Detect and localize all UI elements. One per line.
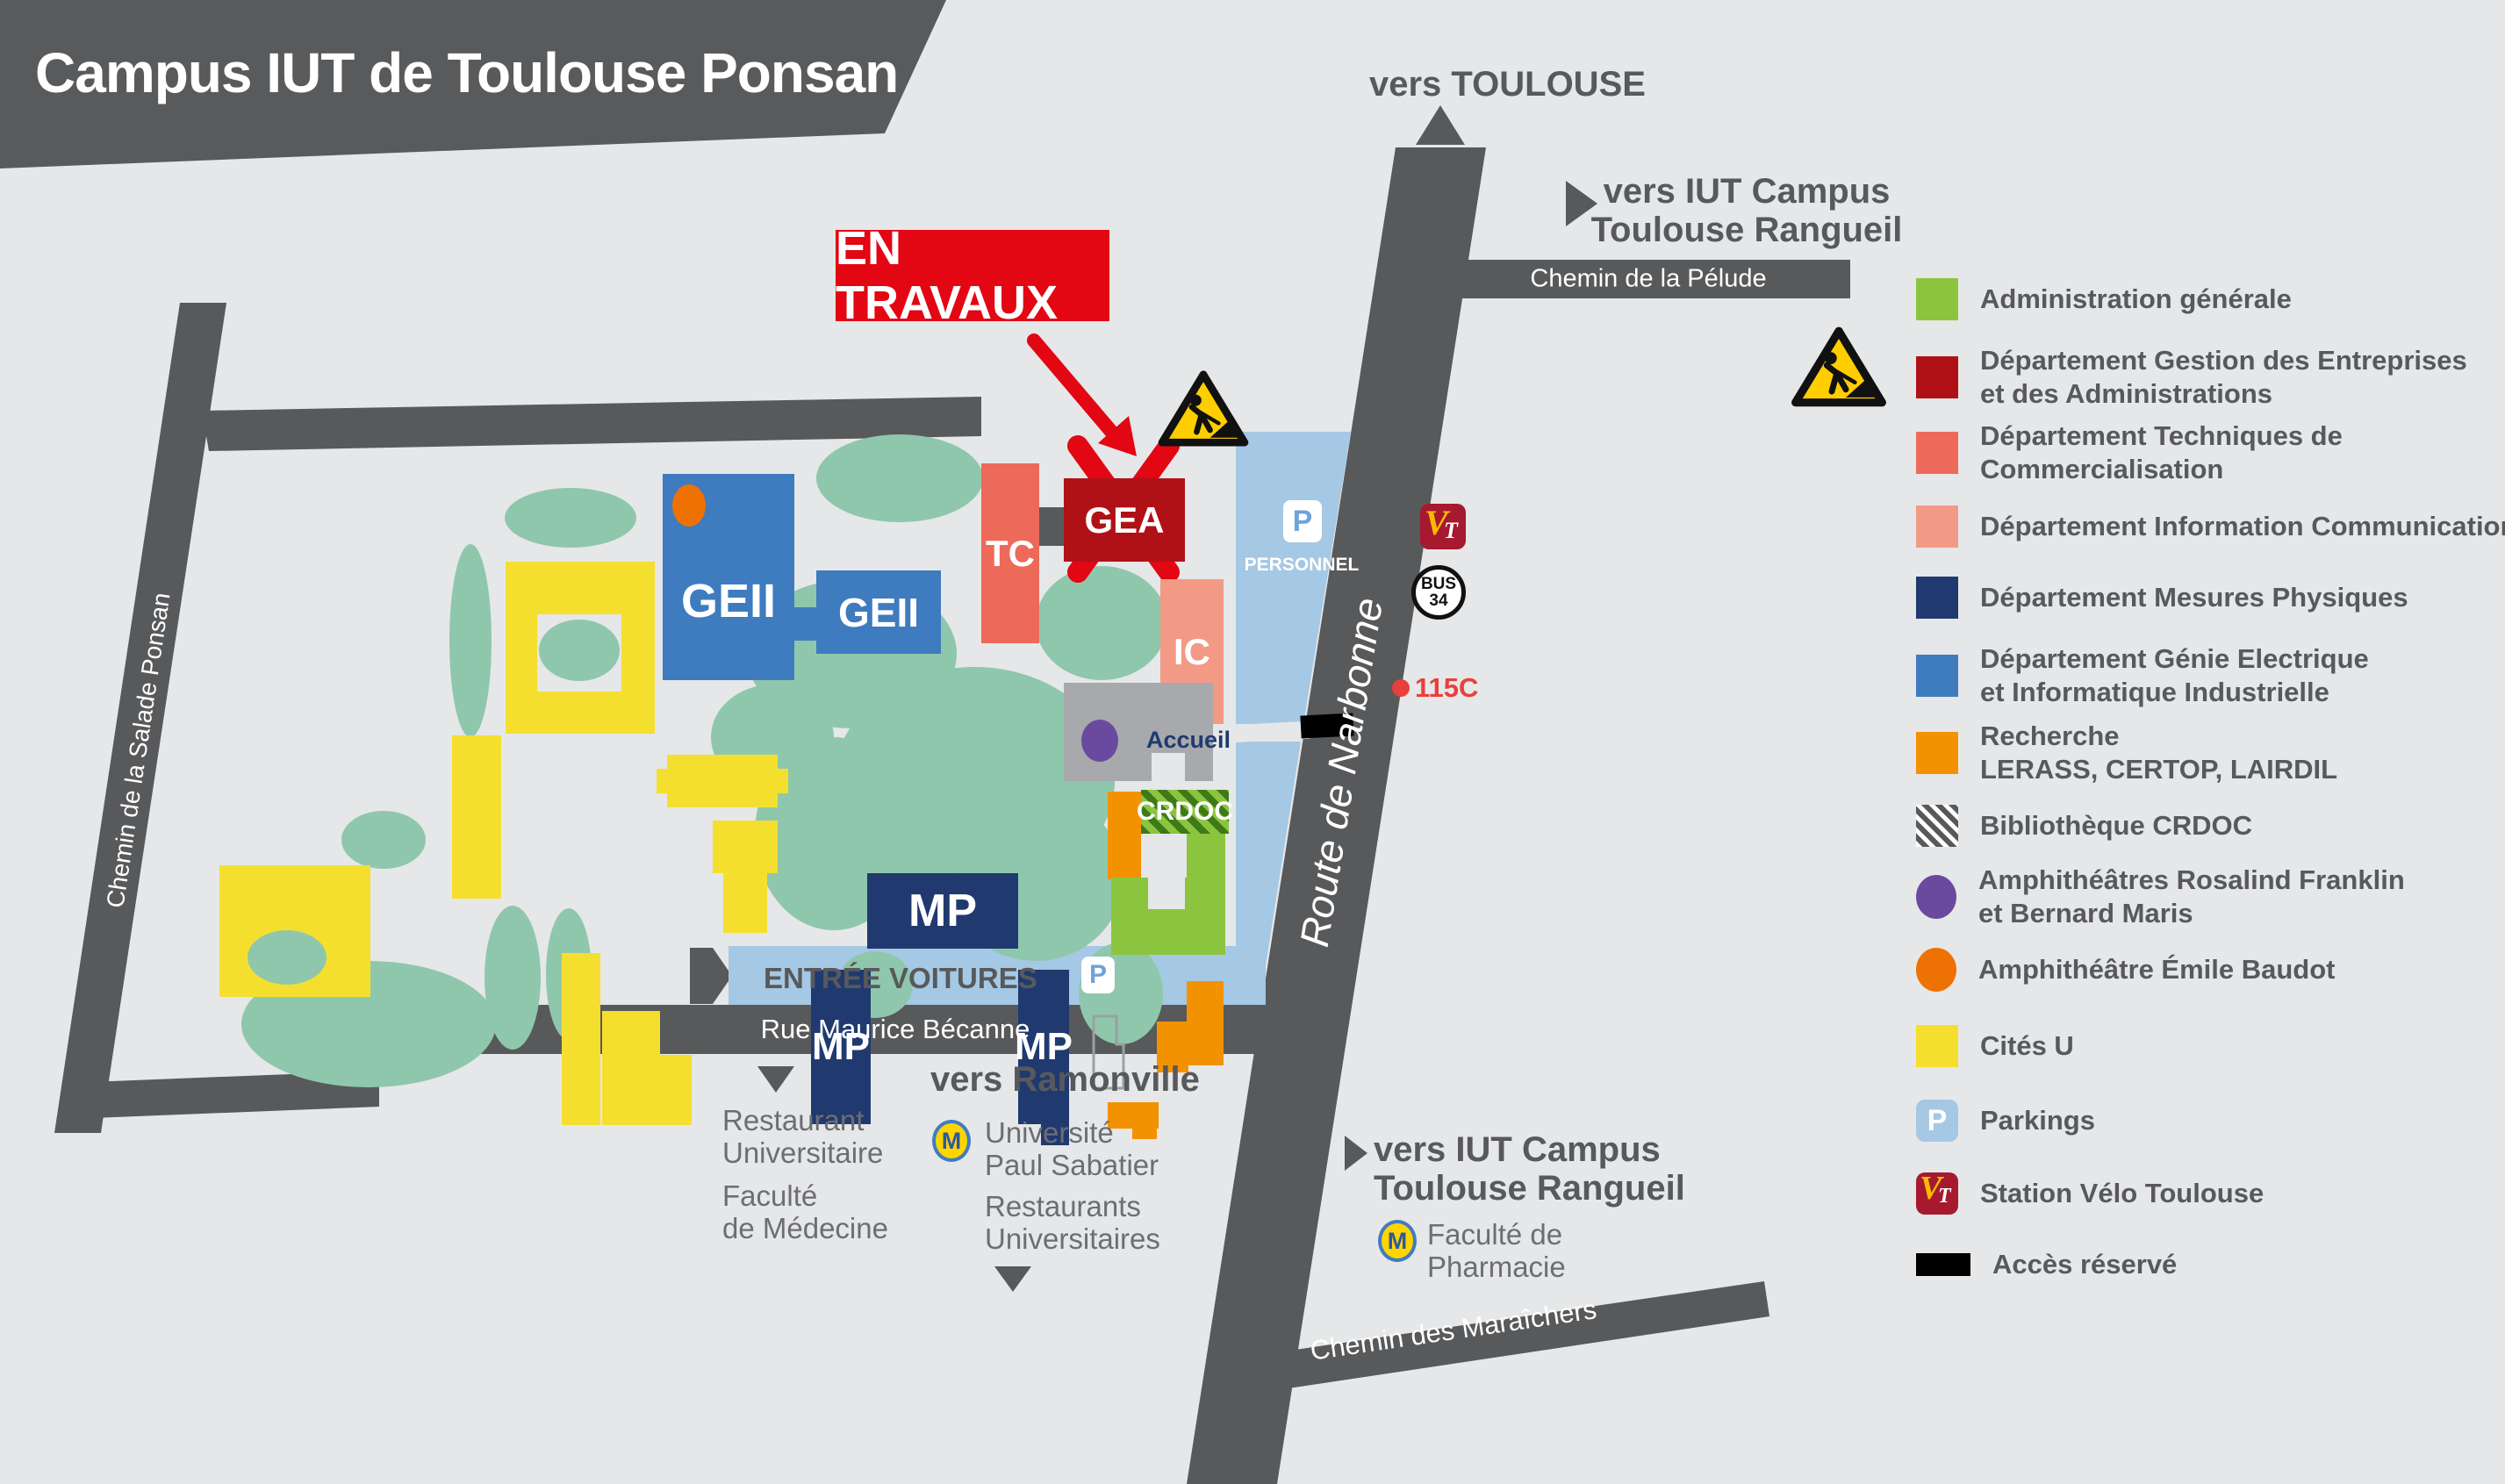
building-label: CRDOC	[1137, 797, 1233, 827]
legend-item-acces-reserve: Accès réservé	[1916, 1224, 2177, 1305]
legend-label-amphitheatre-baudot: Amphithéâtre Émile Baudot	[1978, 953, 2336, 986]
legend-label-line: Amphithéâtres Rosalind Franklin	[1978, 864, 2405, 897]
place-restaurants-universitaires: Restaurants Universitaires	[985, 1190, 1160, 1255]
metro-letter: M	[942, 1128, 962, 1155]
legend-label-line: LERASS, CERTOP, LAIRDIL	[1980, 753, 2337, 786]
label-115c: 115C	[1415, 672, 1478, 704]
legend-swatch-station-velo-toulouse: VT	[1916, 1172, 1958, 1215]
legend-swatch-acces-reserve	[1916, 1253, 1970, 1276]
legend-item-amphitheatre-baudot: Amphithéâtre Émile Baudot	[1916, 929, 2336, 1010]
dir-line: vers IUT Campus	[1580, 172, 1913, 211]
accueil-label: Accueil	[1146, 727, 1231, 754]
legend-label-acces-reserve: Accès réservé	[1992, 1248, 2177, 1281]
dir-line: Toulouse Rangueil	[1374, 1169, 1685, 1208]
tc-gea-connector	[1039, 507, 1064, 546]
parking-icon-band: P	[1081, 957, 1115, 993]
building-gea: GEA	[1064, 478, 1185, 562]
place-line: Université	[985, 1116, 1159, 1149]
legend-label-line: Commercialisation	[1980, 453, 2343, 486]
legend-swatch-recherche	[1916, 732, 1958, 774]
label-entree-voitures: ENTRÉE VOITURES	[764, 962, 1037, 995]
legend-label-line: Administration générale	[1980, 283, 2292, 316]
place-line: de Médecine	[722, 1212, 888, 1244]
vt-letter-t: T	[1444, 518, 1458, 544]
legend-label-line: Recherche	[1980, 720, 2337, 753]
building-tc: TC	[981, 463, 1039, 643]
legend-label-recherche: RechercheLERASS, CERTOP, LAIRDIL	[1980, 720, 2337, 786]
legend-swatch-dept-mesures-physiques	[1916, 577, 1958, 619]
dir-line: Toulouse Rangueil	[1580, 211, 1913, 249]
legend-label-line: Parkings	[1980, 1104, 2095, 1137]
legend-swatch-dept-genie-electrique	[1916, 655, 1958, 697]
building-mp-main: MP	[867, 873, 1018, 949]
bus-34-icon: BUS 34	[1411, 565, 1466, 620]
accueil-notch	[1152, 753, 1185, 793]
place-universite-paul-sabatier: Université Paul Sabatier	[985, 1116, 1159, 1181]
legend-swatch-amphitheatre-baudot	[1916, 948, 1956, 992]
en-travaux-banner: EN TRAVAUX	[836, 230, 1109, 321]
building-accueil: Accueil	[1064, 683, 1213, 781]
arrow-up-toulouse	[1416, 105, 1465, 145]
dir-iut-rangueil-bottom: vers IUT Campus Toulouse Rangueil	[1374, 1130, 1685, 1208]
place-line: Restaurants	[985, 1190, 1160, 1222]
legend-label-dept-techniques-commercialisation: Département Techniques deCommercialisati…	[1980, 419, 2343, 486]
bus-label: BUS	[1421, 576, 1456, 592]
legend-item-recherche: RechercheLERASS, CERTOP, LAIRDIL	[1916, 713, 2337, 793]
red-arrow-shaft	[1034, 341, 1113, 434]
building-label: MP	[908, 885, 977, 937]
campus-map-page: GEII GEII TC GEA IC Accueil CRDOC MP MP …	[0, 0, 2505, 1484]
legend-label-dept-mesures-physiques: Département Mesures Physiques	[1980, 581, 2408, 614]
metro-letter: M	[1388, 1228, 1408, 1255]
bus-number: 34	[1429, 592, 1447, 609]
legend-item-station-velo-toulouse: VTStation Vélo Toulouse	[1916, 1153, 2264, 1234]
place-line: Paul Sabatier	[985, 1149, 1159, 1181]
legend-label-line: Département Génie Electrique	[1980, 642, 2369, 676]
dir-iut-rangueil-top: vers IUT Campus Toulouse Rangueil	[1580, 172, 1913, 249]
building-geii-main: GEII	[663, 474, 794, 680]
legend-swatch-dept-techniques-commercialisation	[1916, 432, 1958, 474]
legend-swatch-amphitheatres-franklin-maris	[1916, 875, 1956, 919]
legend-item-dept-genie-electrique: Département Génie Electriqueet Informati…	[1916, 635, 2369, 716]
bus-stop-115c-dot	[1392, 679, 1410, 697]
building-crdoc: CRDOC	[1141, 790, 1229, 834]
metro-icon-pharmacie: M	[1378, 1220, 1417, 1262]
place-line: Faculté	[722, 1179, 888, 1212]
legend-label-cites-u: Cités U	[1980, 1029, 2074, 1063]
parking-letter: P	[1293, 505, 1313, 539]
place-faculte-medecine: Faculté de Médecine	[722, 1179, 888, 1244]
legend-swatch-bibliotheque-crdoc	[1916, 805, 1958, 847]
legend-item-dept-techniques-commercialisation: Département Techniques deCommercialisati…	[1916, 412, 2343, 493]
legend-label-line: Station Vélo Toulouse	[1980, 1177, 2264, 1210]
arrow-down-restaurant	[757, 1066, 794, 1093]
place-line: Faculté de	[1427, 1218, 1566, 1251]
building-label: TC	[986, 533, 1035, 575]
label-chemin-pelude: Chemin de la Pélude	[1530, 265, 1766, 294]
dir-vers-ramonville: vers Ramonville	[930, 1060, 1200, 1100]
legend-label-dept-genie-electrique: Département Génie Electriqueet Informati…	[1980, 642, 2369, 709]
building-label: GEII	[838, 589, 919, 636]
entree-voitures-chevron	[690, 948, 732, 1004]
place-line: Universitaires	[985, 1222, 1160, 1255]
legend-swatch-administration-generale	[1916, 278, 1958, 320]
place-restaurant-universitaire: Restaurant Universitaire	[722, 1104, 883, 1169]
amphi-baudot-marker	[672, 484, 706, 527]
roadworks-sign-legend	[1796, 331, 1883, 402]
building-geii-annex: GEII	[816, 570, 941, 654]
legend-label-parkings: Parkings	[1980, 1104, 2095, 1137]
legend-item-parkings: PParkings	[1916, 1080, 2095, 1161]
legend-label-line: et Informatique Industrielle	[1980, 676, 2369, 709]
legend-item-dept-gestion-entreprises: Département Gestion des Entrepriseset de…	[1916, 337, 2467, 418]
parking-letter: P	[1089, 960, 1107, 990]
legend-item-dept-information-communication: Département Information Communication	[1916, 486, 2505, 567]
legend-label-station-velo-toulouse: Station Vélo Toulouse	[1980, 1177, 2264, 1210]
parking-icon-personnel: P	[1283, 500, 1322, 542]
label-rue-becanne: Rue Maurice Bécanne	[761, 1014, 1030, 1045]
legend-swatch-dept-gestion-entreprises	[1916, 356, 1958, 398]
velo-toulouse-icon: V T	[1420, 504, 1466, 549]
legend-label-administration-generale: Administration générale	[1980, 283, 2292, 316]
amphi-franklin-maris-marker	[1081, 720, 1118, 762]
legend-item-amphitheatres-franklin-maris: Amphithéâtres Rosalind Franklinet Bernar…	[1916, 857, 2405, 937]
roadworks-sign-map	[1162, 375, 1245, 442]
legend-label-line: Accès réservé	[1992, 1248, 2177, 1281]
legend-label-dept-information-communication: Département Information Communication	[1980, 510, 2505, 543]
legend-item-dept-mesures-physiques: Département Mesures Physiques	[1916, 557, 2408, 638]
legend-label-bibliotheque-crdoc: Bibliothèque CRDOC	[1980, 809, 2252, 842]
legend-label-line: Département Gestion des Entreprises	[1980, 344, 2467, 377]
legend-label-line: Département Mesures Physiques	[1980, 581, 2408, 614]
legend-label-amphitheatres-franklin-maris: Amphithéâtres Rosalind Franklinet Bernar…	[1978, 864, 2405, 930]
dir-line: vers IUT Campus	[1374, 1130, 1685, 1169]
legend-swatch-cites-u	[1916, 1025, 1958, 1067]
place-line: Pharmacie	[1427, 1251, 1566, 1283]
place-faculte-pharmacie: Faculté de Pharmacie	[1427, 1218, 1566, 1283]
geii-connector	[788, 607, 818, 641]
building-label: IC	[1174, 631, 1210, 673]
en-travaux-label: EN TRAVAUX	[836, 221, 1109, 330]
building-label: GEII	[681, 574, 776, 628]
page-title: Campus IUT de Toulouse Ponsan	[0, 0, 948, 105]
arrow-down-ramonville	[994, 1266, 1031, 1292]
legend-label-line: Département Information Communication	[1980, 510, 2505, 543]
legend-label-line: Bibliothèque CRDOC	[1980, 809, 2252, 842]
legend-item-cites-u: Cités U	[1916, 1006, 2074, 1086]
place-line: Restaurant	[722, 1104, 883, 1136]
legend-label-dept-gestion-entreprises: Département Gestion des Entrepriseset de…	[1980, 344, 2467, 411]
legend-item-bibliotheque-crdoc: Bibliothèque CRDOC	[1916, 785, 2252, 866]
legend-label-line: et Bernard Maris	[1978, 897, 2405, 930]
arrow-right-iut-bottom	[1345, 1136, 1367, 1171]
building-label: GEA	[1084, 499, 1164, 541]
legend-swatch-parkings: P	[1916, 1100, 1958, 1142]
metro-icon-ramonville: M	[932, 1120, 971, 1162]
legend-label-line: Département Techniques de	[1980, 419, 2343, 453]
dir-vers-toulouse: vers TOULOUSE	[1369, 65, 1633, 104]
legend-label-line: Amphithéâtre Émile Baudot	[1978, 953, 2336, 986]
legend-label-line: Cités U	[1980, 1029, 2074, 1063]
place-line: Universitaire	[722, 1136, 883, 1169]
legend-item-administration-generale: Administration générale	[1916, 259, 2292, 340]
label-personnel: PERSONNEL	[1236, 555, 1367, 576]
legend-swatch-dept-information-communication	[1916, 505, 1958, 548]
legend-label-line: et des Administrations	[1980, 377, 2467, 411]
